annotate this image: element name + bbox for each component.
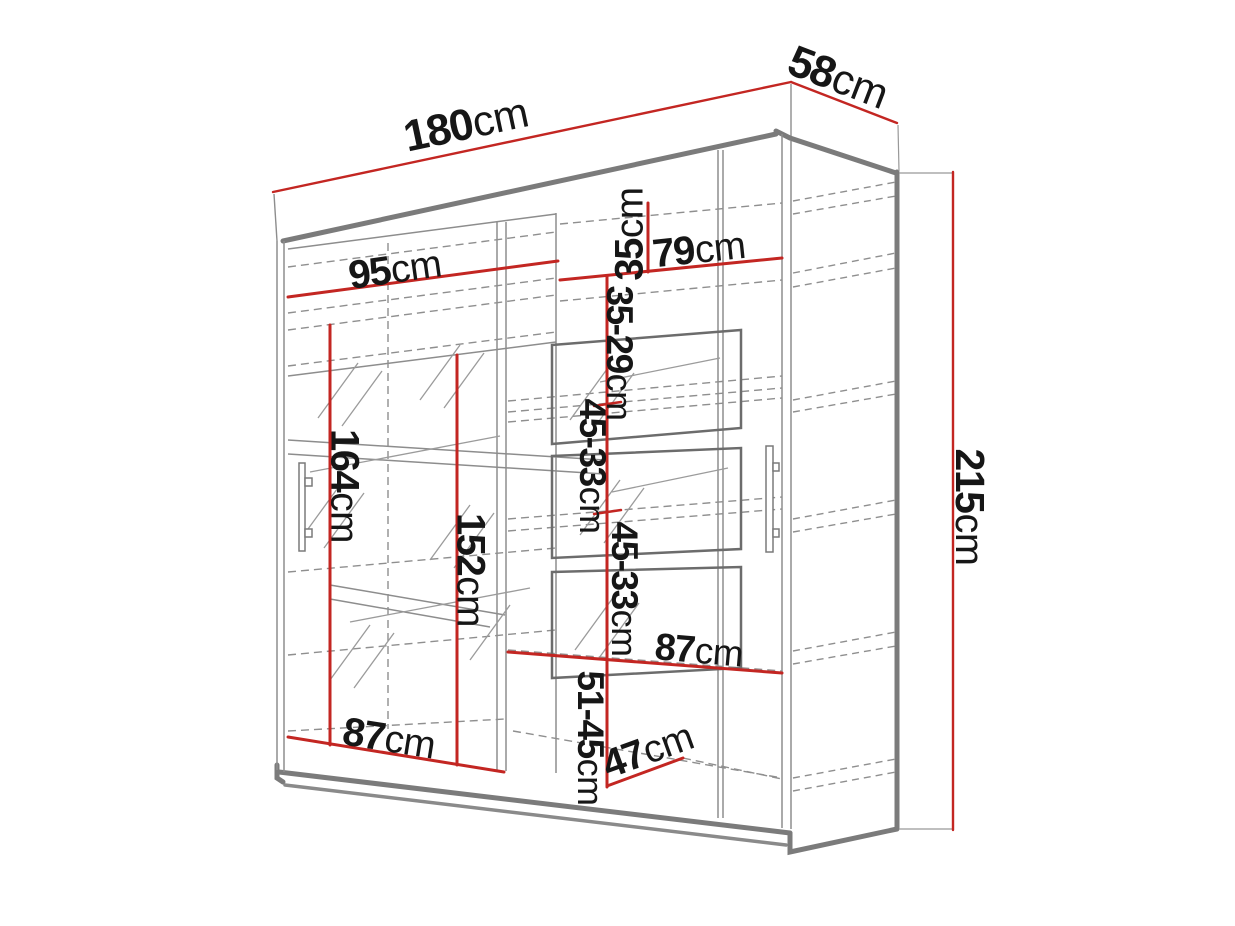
wardrobe-dimension-diagram: 180cm 58cm 95cm 79cm 35cm 35-29cm 45-33c… <box>0 0 1235 926</box>
dim-label-interior-164: 164cm <box>324 429 365 543</box>
dim-label-right-shelf-87: 87cm <box>653 628 744 674</box>
dim-label-bottom-51-45: 51-45cm <box>571 671 609 806</box>
dim-label-shelf-45-33-upper: 45-33cm <box>573 399 611 534</box>
dim-label-height-215: 215cm <box>948 449 990 566</box>
dim-label-shelf-45-33-lower: 45-33cm <box>605 522 643 657</box>
dim-label-right-door-79: 79cm <box>651 225 748 275</box>
wardrobe-line-drawing <box>0 0 1235 926</box>
dimension-extension-lines <box>898 125 952 829</box>
right-door-handle <box>766 446 779 552</box>
plinth-shadow-line <box>285 785 786 845</box>
side-panel-depth-dashed <box>793 182 896 791</box>
left-door-handle <box>299 463 312 551</box>
dim-label-mirror-152: 152cm <box>450 513 491 627</box>
dim-label-top-shelf-35: 35cm <box>610 187 651 280</box>
